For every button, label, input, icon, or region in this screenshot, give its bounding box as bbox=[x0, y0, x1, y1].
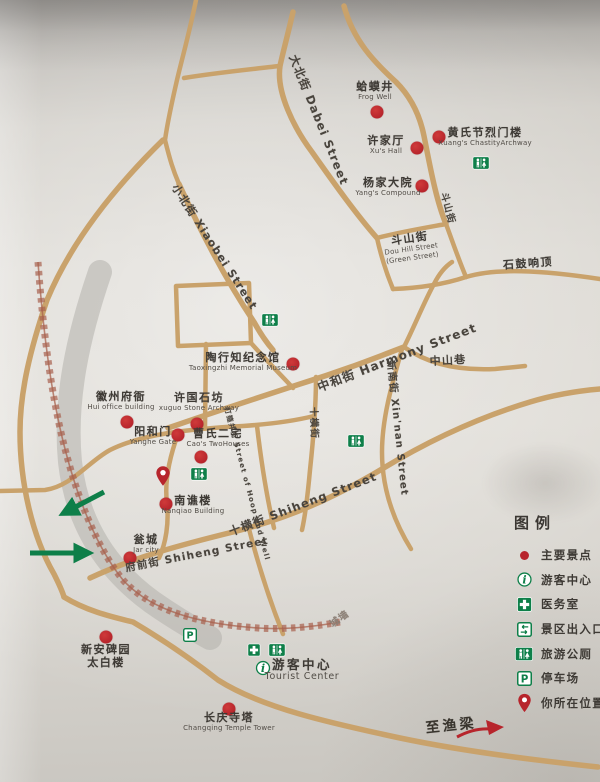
legend-item-label: 主要景点 bbox=[541, 547, 592, 563]
dot-icon bbox=[519, 550, 530, 561]
legend-item-cross: 医务室 bbox=[514, 592, 600, 617]
legend-item-dot: 主要景点 bbox=[514, 543, 600, 568]
legend-gate-icon-wrap bbox=[514, 622, 534, 637]
legend-panel: 图例 主要景点游客中心医务室景区出入口旅游公厕停车场你所在位置 bbox=[514, 512, 600, 715]
legend-cross-icon-wrap bbox=[514, 597, 534, 612]
pin-icon bbox=[517, 693, 532, 713]
legend-item-label: 游客中心 bbox=[541, 572, 592, 588]
map-sign-photo: P i bbox=[0, 0, 600, 782]
info-icon bbox=[517, 572, 532, 587]
legend-title: 图例 bbox=[514, 512, 600, 533]
legend-item-wc: 旅游公厕 bbox=[514, 641, 600, 666]
legend-item-label: 旅游公厕 bbox=[541, 646, 592, 662]
roads bbox=[0, 0, 600, 767]
moat-gray-band bbox=[69, 272, 210, 638]
legend-item-label: 停车场 bbox=[541, 670, 579, 686]
legend-item-pin: 你所在位置 bbox=[514, 691, 600, 716]
legend-item-info: 游客中心 bbox=[514, 568, 600, 593]
legend-wc-icon-wrap bbox=[514, 647, 534, 661]
to-yuliang-arrow bbox=[457, 720, 504, 737]
legend-parking-icon-wrap bbox=[514, 671, 534, 686]
legend-item-label: 景区出入口 bbox=[541, 621, 600, 637]
legend-item-gate: 景区出入口 bbox=[514, 617, 600, 642]
legend-pin-icon-wrap bbox=[514, 693, 534, 713]
legend-item-label: 医务室 bbox=[541, 596, 579, 612]
cross-icon bbox=[517, 597, 532, 612]
legend-item-label: 你所在位置 bbox=[541, 695, 600, 711]
parking-icon bbox=[517, 671, 532, 686]
legend-item-parking: 停车场 bbox=[514, 666, 600, 691]
legend-dot-icon-wrap bbox=[514, 550, 534, 561]
wc-icon bbox=[515, 647, 533, 661]
gate-icon bbox=[517, 622, 532, 637]
legend-info-icon-wrap bbox=[514, 572, 534, 587]
road-network bbox=[0, 0, 600, 782]
